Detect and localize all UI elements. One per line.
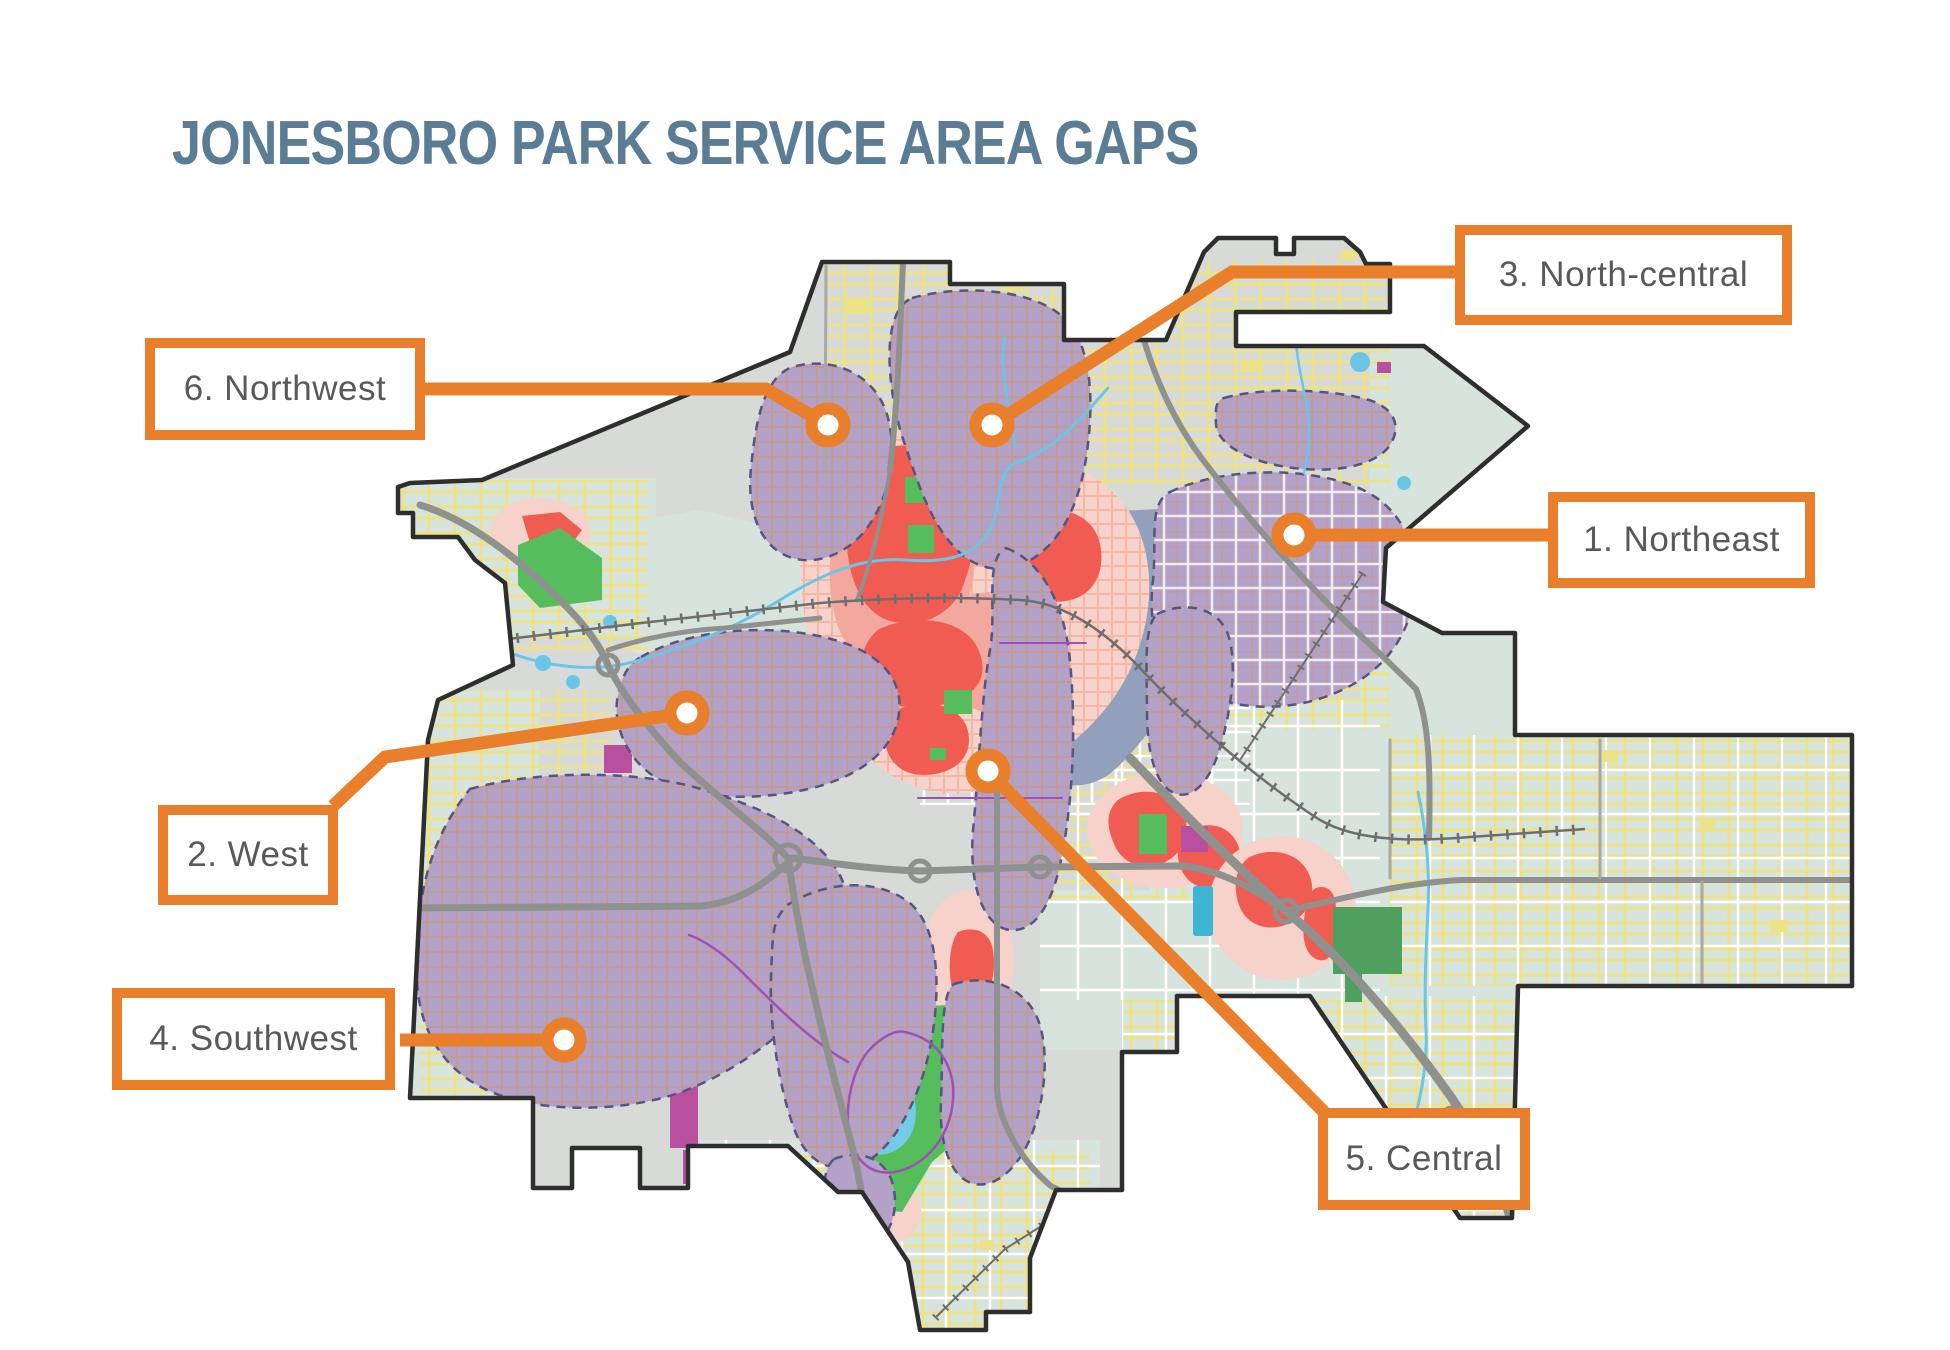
callout-box-north-central: 3. North-central bbox=[1455, 225, 1792, 325]
callout-label-central: 5. Central bbox=[1346, 1139, 1503, 1179]
callout-box-northwest: 6. Northwest bbox=[145, 338, 425, 440]
callout-box-northeast: 1. Northeast bbox=[1548, 492, 1815, 588]
marker-central bbox=[972, 755, 1005, 788]
callout-box-southwest: 4. Southwest bbox=[112, 988, 395, 1090]
callout-label-southwest: 4. Southwest bbox=[149, 1019, 357, 1059]
callout-label-northeast: 1. Northeast bbox=[1583, 520, 1780, 560]
callout-box-central: 5. Central bbox=[1318, 1108, 1530, 1210]
marker-northwest bbox=[812, 409, 845, 442]
callout-label-northwest: 6. Northwest bbox=[184, 369, 386, 409]
marker-north-central bbox=[976, 409, 1009, 442]
infographic-canvas: JONESBORO PARK SERVICE AREA GAPS bbox=[0, 0, 1950, 1350]
callout-label-north-central: 3. North-central bbox=[1499, 255, 1748, 295]
marker-northeast bbox=[1278, 519, 1311, 552]
service-area-map bbox=[0, 0, 1950, 1350]
callout-box-west: 2. West bbox=[158, 805, 338, 905]
callout-label-west: 2. West bbox=[187, 835, 309, 875]
marker-west bbox=[671, 697, 704, 730]
marker-southwest bbox=[548, 1024, 581, 1057]
